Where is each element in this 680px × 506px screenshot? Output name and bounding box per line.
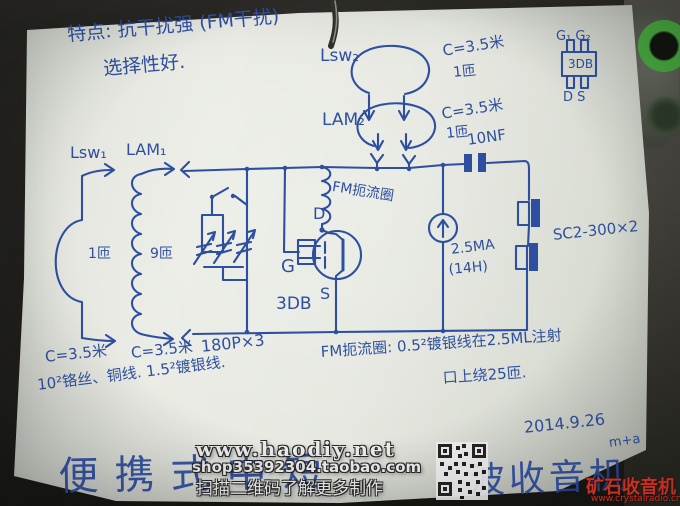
photo-of-hand-drawn-schematic: 特点: 抗干扰强 (FM干扰) 选择性好. Lsw₂ C=3.5米 1匝 LAM…: [0, 0, 680, 506]
label-package-gates: G₁ G₂: [556, 29, 591, 44]
label-package-model: 3DB: [568, 57, 593, 71]
earphone-symbols: [516, 202, 529, 330]
label-lsw1-turns: 1匝: [88, 243, 111, 263]
brand-url: www.crystalradio.cn: [591, 494, 680, 504]
loop-antenna-lsw2-symbol: [352, 46, 429, 120]
label-package-pins: D S: [563, 90, 585, 105]
qr-code: [436, 442, 488, 500]
paper-clip: [312, 0, 362, 52]
label-mosfet-s: S: [320, 284, 330, 303]
variable-capacitor-bank-symbol: [194, 169, 255, 332]
label-lsw2-turns: 1匝: [452, 60, 477, 82]
label-mosfet-g: G: [281, 256, 295, 277]
label-bias-inductance: (14H): [448, 259, 489, 278]
label-lsw1: Lsw₁: [70, 143, 107, 162]
label-lam2: LAM₂: [322, 110, 365, 130]
watermark-scan-hint: 扫描二维码了解更多制作: [196, 474, 383, 499]
label-mosfet-model: 3DB: [276, 294, 312, 314]
label-lam1-turns: 9匝: [150, 243, 173, 263]
label-mosfet-d: D: [313, 204, 325, 223]
label-lam1: LAM₁: [126, 140, 166, 159]
